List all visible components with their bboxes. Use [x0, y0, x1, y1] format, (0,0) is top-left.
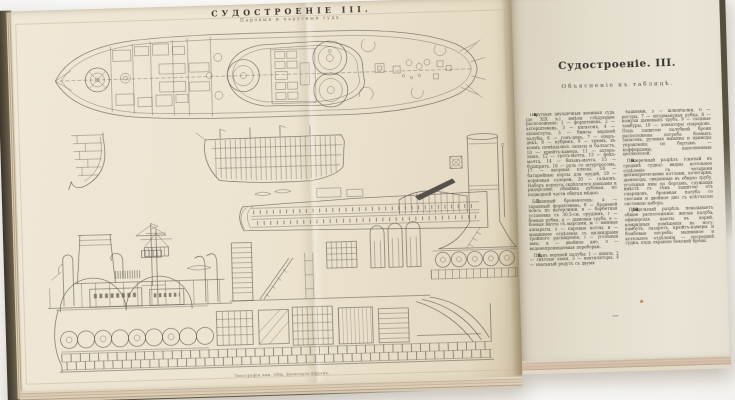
explanation-paragraph: 7. Башенный броненосецъ: а — таранный фо…: [528, 197, 618, 251]
text-page-heading: Судостроеніе. III.: [523, 56, 711, 74]
steamer-section-figure: [225, 133, 518, 301]
explanation-paragraph: 10. Продольный разрѣзъ показываетъ общее…: [624, 206, 714, 246]
ship-plate-engraving: [11, 0, 522, 391]
explanation-paragraph: башнями, 5 — шлюпбалки, 6 — ростры, 7 — …: [622, 108, 712, 158]
explanation-text-page: Судостроеніе. III. Объясненіе къ таблицѣ…: [511, 0, 730, 361]
explanation-paragraph: 9. Поперечный разрѣзъ (снятый въ срединѣ…: [623, 157, 713, 207]
explanation-columns: 6. Парусныя двухдечныя военныя суда (до …: [526, 108, 718, 313]
explanation-paragraph: 8. Планъ верхней палубы: 1 — шпиль, 2 — …: [530, 251, 619, 268]
plate-frame: [16, 10, 515, 384]
text-column-right: башнями, 5 — шлюпбалки, 6 — ростры, 7 — …: [622, 108, 717, 311]
superstructure-figure: [46, 227, 232, 308]
deck-plan-figure: [54, 26, 486, 123]
photograph-of-open-book: СУДОСТРОЕНІЕ III. Паровыя и парусныя суд…: [0, 0, 735, 400]
plate-page: СУДОСТРОЕНІЕ III. Паровыя и парусныя суд…: [11, 0, 522, 391]
foxing-spot: [640, 300, 643, 303]
engine-room-detail: [228, 221, 430, 301]
sailing-ship-section-figure: [196, 124, 346, 185]
book: СУДОСТРОЕНІЕ III. Паровыя и парусныя суд…: [0, 0, 735, 400]
text-column-left: 6. Парусныя двухдечныя военныя суда (до …: [526, 111, 621, 314]
text-page-subheading: Объясненіе къ таблицѣ.: [524, 80, 712, 92]
explanation-paragraph: 6. Парусныя двухдечныя военныя суда (до …: [526, 111, 617, 198]
section-end-mark: —: [613, 313, 619, 320]
bow-section-figure: [67, 133, 106, 190]
